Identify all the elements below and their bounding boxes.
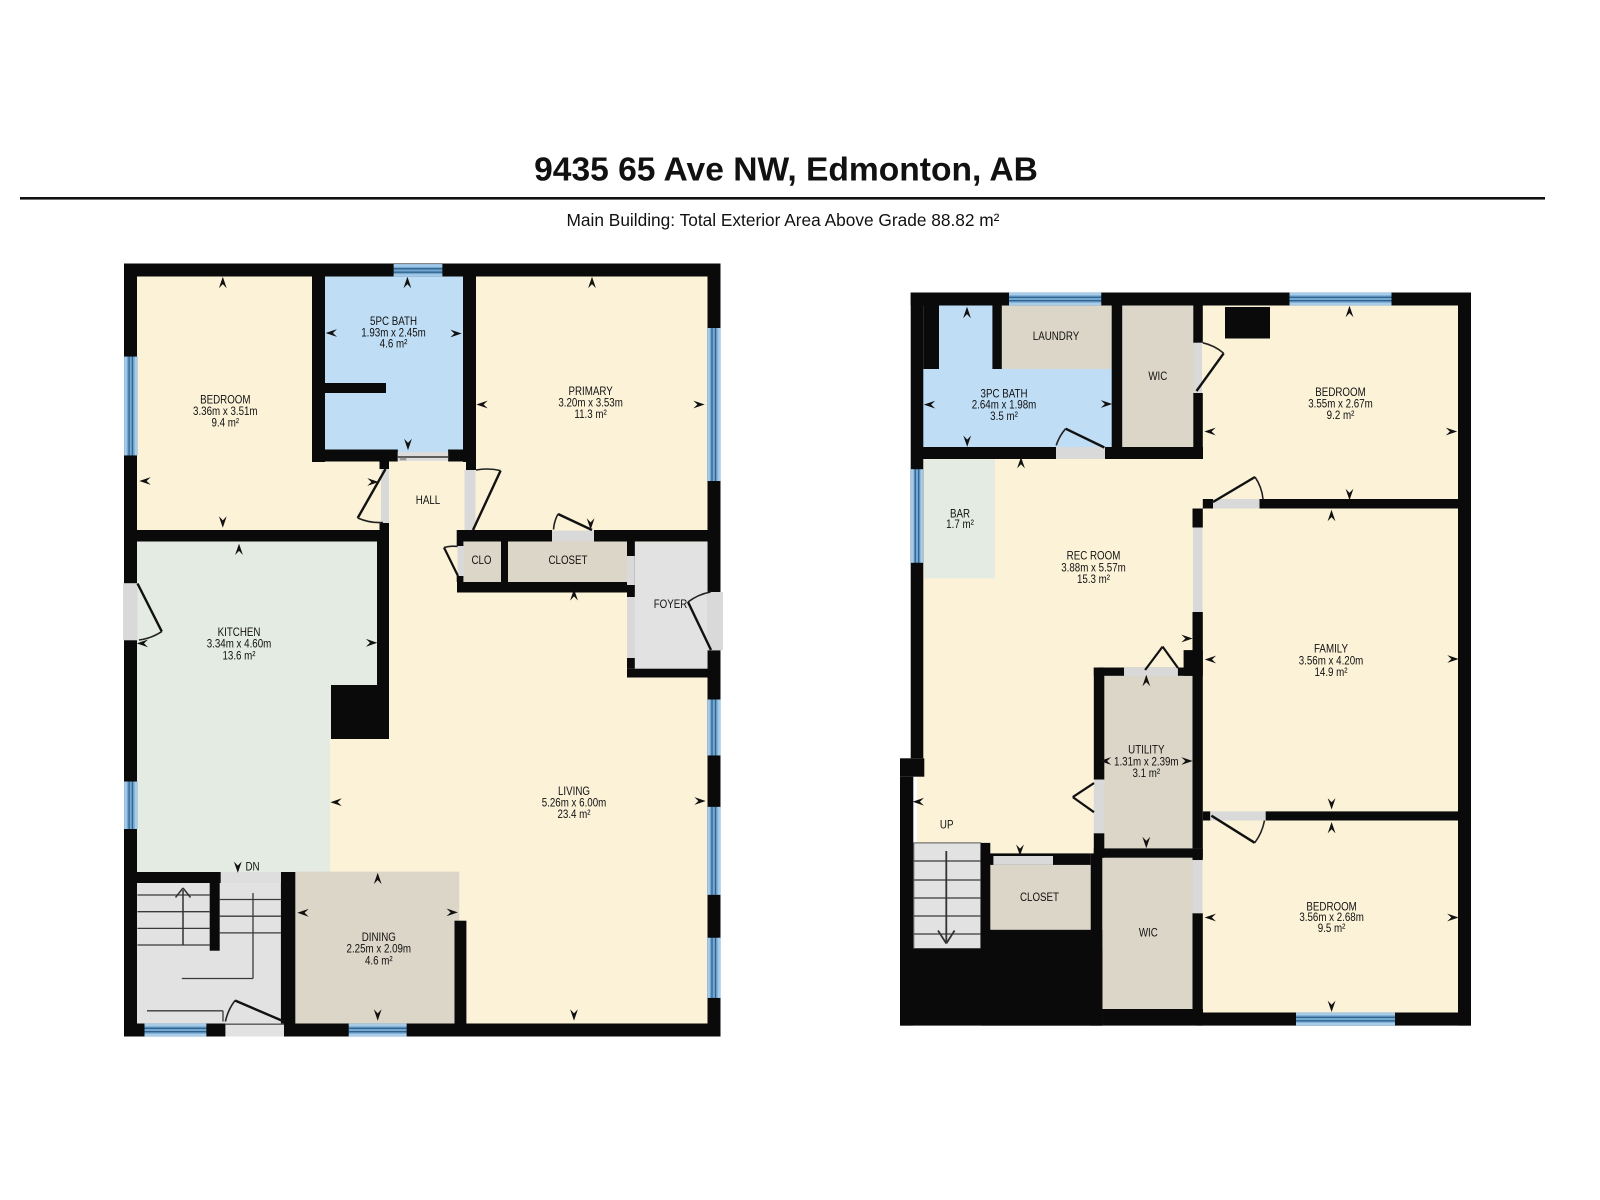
svg-text:11.3 m²: 11.3 m² (574, 408, 607, 421)
svg-text:15.3 m²: 15.3 m² (1077, 573, 1110, 586)
svg-text:23.4 m²: 23.4 m² (557, 808, 590, 821)
svg-text:LAUNDRY: LAUNDRY (1033, 330, 1080, 343)
svg-text:DN: DN (245, 861, 259, 874)
svg-text:9435 65 Ave NW, Edmonton, AB: 9435 65 Ave NW, Edmonton, AB (534, 152, 1038, 189)
svg-text:CLOSET: CLOSET (1020, 891, 1059, 904)
svg-text:13.6 m²: 13.6 m² (222, 649, 255, 662)
svg-text:FOYER: FOYER (654, 598, 688, 611)
svg-text:HALL: HALL (416, 494, 440, 507)
svg-text:WIC: WIC (1139, 926, 1158, 939)
svg-text:4.6 m²: 4.6 m² (365, 954, 393, 967)
svg-text:WIC: WIC (1148, 370, 1167, 383)
svg-text:CLO: CLO (471, 554, 491, 567)
svg-text:CLOSET: CLOSET (548, 554, 587, 567)
svg-text:UP: UP (940, 818, 954, 831)
svg-text:9.4 m²: 9.4 m² (211, 416, 239, 429)
svg-text:4.6 m²: 4.6 m² (380, 338, 408, 351)
svg-text:1.7 m²: 1.7 m² (946, 518, 974, 531)
svg-text:3.5 m²: 3.5 m² (990, 410, 1018, 423)
svg-text:9.2 m²: 9.2 m² (1327, 409, 1355, 422)
svg-text:Main Building: Total Exterior: Main Building: Total Exterior Area Above… (567, 210, 1000, 230)
svg-text:14.9 m²: 14.9 m² (1314, 666, 1347, 679)
svg-text:3.1 m²: 3.1 m² (1132, 767, 1160, 780)
svg-text:9.5 m²: 9.5 m² (1318, 922, 1346, 935)
